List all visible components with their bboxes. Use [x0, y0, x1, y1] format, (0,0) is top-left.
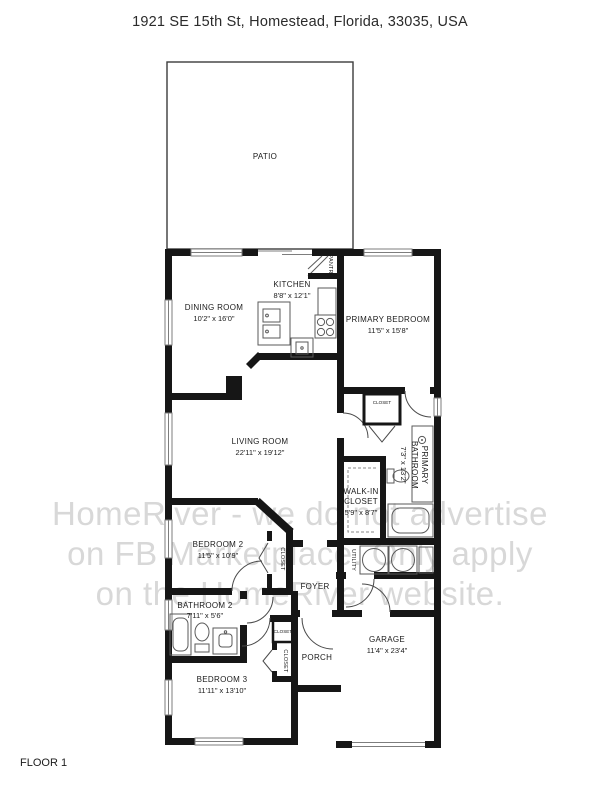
water-heater-icon	[419, 547, 433, 573]
bathroom2-fixtures	[170, 614, 237, 655]
hall-closet-box	[364, 394, 400, 424]
hall-closet-label: CLOSET	[373, 400, 392, 405]
dining-room-label: DINING ROOM	[185, 303, 243, 312]
bathtub2-icon	[170, 614, 191, 655]
living-room-label: LIVING ROOM	[232, 437, 289, 446]
bathtub-icon	[388, 504, 433, 537]
bedroom2-closet-bifold	[259, 543, 268, 573]
living-room-dims: 22'11" x 19'12"	[236, 448, 285, 457]
sliding-door	[258, 251, 312, 255]
utility-fixtures	[360, 546, 433, 574]
floor-plan-drawing: PATIO DINING ROOM 10'2" x 16'0" KITCHEN …	[0, 0, 600, 800]
garage-label: GARAGE	[369, 635, 405, 644]
entry-closet-label: CLOSET	[274, 629, 293, 634]
walk-in-closet-dims: 5'9" x 8'7"	[345, 508, 378, 517]
pantry-label: PANTRY	[327, 254, 333, 277]
address-title: 1921 SE 15th St, Homestead, Florida, 330…	[0, 14, 600, 30]
primary-bedroom-label: PRIMARY BEDROOM	[346, 315, 430, 324]
primary-bedroom-dims: 11'5" x 15'8"	[368, 326, 409, 335]
utility-label: UTILITY	[350, 549, 356, 571]
door-arcs	[232, 391, 431, 672]
bedroom2-dims: 11'5" x 10'9"	[198, 551, 239, 560]
hall-closet-bifold	[369, 426, 395, 442]
floor-label: FLOOR 1	[20, 757, 67, 769]
bedroom3-label: BEDROOM 3	[197, 675, 248, 684]
dryer-icon	[392, 549, 415, 572]
bedroom2-closet-label: CLOSET	[279, 547, 285, 571]
garage-dims: 11'4" x 23'4"	[367, 646, 408, 655]
bathroom2-label: BATHROOM 2	[177, 601, 233, 610]
bathroom2-dims: 7'11" x 5'6"	[187, 611, 224, 620]
washer-icon	[363, 549, 386, 572]
sink2-icon	[213, 628, 237, 654]
kitchen-fixtures	[258, 256, 337, 357]
kitchen-dims: 8'8" x 12'1"	[274, 291, 311, 300]
bedroom3-closet-label: CLOSET	[282, 649, 288, 673]
walk-in-closet-label-2: CLOSET	[344, 497, 378, 506]
patio-label: PATIO	[253, 152, 277, 161]
bedroom3-closet-bifold	[263, 650, 272, 672]
kitchen-label: KITCHEN	[273, 280, 310, 289]
floor-plan-page: 1921 SE 15th St, Homestead, Florida, 330…	[0, 0, 600, 800]
walk-in-closet-label-1: WALK-IN	[343, 487, 378, 496]
primary-bathroom-label-2: BATHROOM	[410, 441, 419, 489]
primary-bathroom-dims: 7'3" x 13'2"	[399, 447, 408, 484]
foyer-label: FOYER	[300, 582, 329, 591]
porch-label: PORCH	[302, 653, 332, 662]
bedroom2-label: BEDROOM 2	[193, 540, 244, 549]
stove-icon	[315, 315, 336, 338]
primary-bathroom-label-1: PRIMARY	[420, 446, 429, 485]
dining-room-dims: 10'2" x 16'0"	[193, 314, 234, 323]
bedroom3-dims: 11'11" x 13'10"	[198, 686, 247, 695]
garage-door	[352, 743, 425, 747]
kitchen-island	[258, 302, 290, 345]
toilet2-icon	[195, 623, 209, 652]
